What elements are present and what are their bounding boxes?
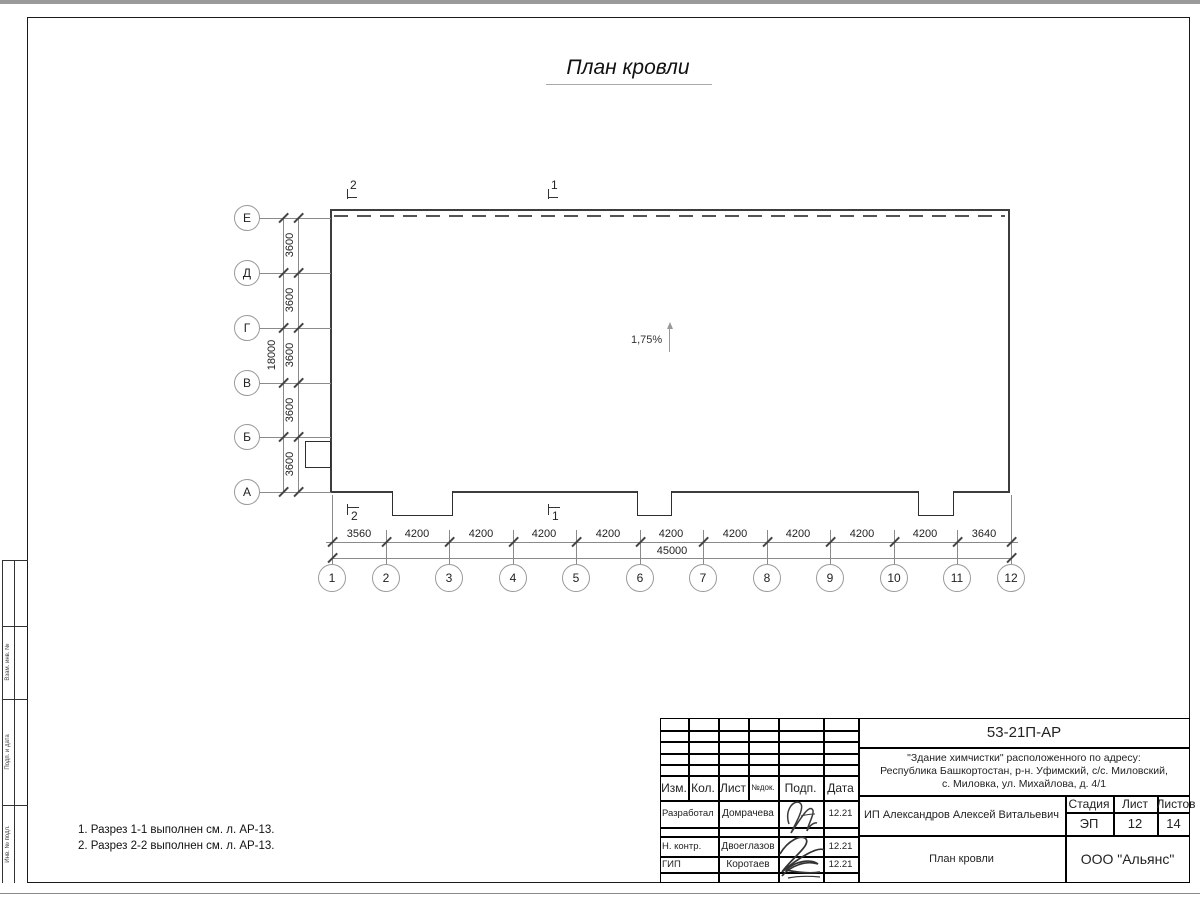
- tb-name: Коротаев: [718, 856, 778, 872]
- row-axis-bubble: Д: [234, 260, 260, 286]
- col-segment-dim: 4200: [405, 528, 429, 540]
- tb-role: ГИП: [662, 856, 718, 872]
- note-line: 1. Разрез 1-1 выполнен см. л. АР-13.: [78, 822, 275, 838]
- col-segment-dim: 4200: [913, 528, 937, 540]
- tb-date: 12.21: [823, 800, 858, 827]
- col-axis-bubble: 10: [880, 564, 908, 592]
- col-axis-bubble: 7: [689, 564, 717, 592]
- row-segment-dim: 3600: [284, 343, 296, 367]
- tb-role: Н. контр.: [662, 836, 718, 856]
- tb-name: Домрачева: [718, 800, 778, 827]
- tb-header-kol: Кол.: [688, 775, 718, 800]
- tb-header-list: Лист: [718, 775, 748, 800]
- tb-drawing-name: План кровли: [858, 835, 1065, 883]
- col-segment-dim: 4200: [596, 528, 620, 540]
- tb-line: [660, 730, 858, 732]
- col-segment-dim: 4200: [532, 528, 556, 540]
- col-axis-line: [894, 530, 895, 564]
- row-axis-bubble: Г: [234, 315, 260, 341]
- col-axis-line: [767, 530, 768, 564]
- row-segment-dim: 3600: [284, 452, 296, 476]
- tb-line: [660, 741, 858, 743]
- col-axis-bubble: 6: [626, 564, 654, 592]
- col-axis-line: [1011, 495, 1012, 564]
- tb-sheet-header: Лист: [1113, 795, 1157, 812]
- tb-line: [660, 753, 858, 755]
- row-axis-bubble: А: [234, 479, 260, 505]
- tb-line: [660, 764, 858, 766]
- col-segment-dim: 4200: [850, 528, 874, 540]
- row-segment-dim: 3600: [284, 288, 296, 312]
- col-axis-line: [703, 530, 704, 564]
- tb-company: ООО "Альянс": [1065, 835, 1190, 883]
- tb-address-line: с. Миловка, ул. Михайлова, д. 4/1: [942, 778, 1106, 791]
- col-axis-bubble: 3: [435, 564, 463, 592]
- col-segment-dim: 4200: [659, 528, 683, 540]
- tb-header-izm: Изм.: [660, 775, 688, 800]
- tb-doc-number: 53-21П-АР: [858, 718, 1190, 747]
- col-axis-line: [957, 530, 958, 564]
- signature-razrabotal: [781, 796, 825, 836]
- col-axis-bubble: 2: [372, 564, 400, 592]
- col-axis-bubble: 8: [753, 564, 781, 592]
- tb-sheets-header: Листов: [1157, 795, 1195, 812]
- col-axis-line: [830, 530, 831, 564]
- drawing-sheet: Взам. инв. № Подп. и дата Инв. № подл. П…: [0, 0, 1200, 900]
- col-axis-bubble: 1: [318, 564, 346, 592]
- tb-address: "Здание химчистки" расположенного по адр…: [858, 747, 1190, 795]
- row-axis-bubble: Б: [234, 424, 260, 450]
- row-axis-bubble: В: [234, 370, 260, 396]
- col-axis-bubble: 5: [562, 564, 590, 592]
- row-segment-dim: 3600: [284, 398, 296, 422]
- tb-stage-header: Стадия: [1065, 795, 1113, 812]
- tb-header-data: Дата: [823, 775, 858, 800]
- col-axis-line: [513, 530, 514, 564]
- col-axis-bubble: 4: [499, 564, 527, 592]
- tb-sheet-value: 12: [1113, 812, 1157, 835]
- note-line: 2. Разрез 2-2 выполнен см. л. АР-13.: [78, 838, 275, 854]
- tb-address-line: "Здание химчистки" расположенного по адр…: [907, 752, 1141, 765]
- col-segment-dim: 4200: [786, 528, 810, 540]
- col-axis-bubble: 11: [943, 564, 971, 592]
- tb-sheets-value: 14: [1157, 812, 1190, 835]
- col-axis-bubble: 12: [997, 564, 1025, 592]
- row-axis-bubble: Е: [234, 205, 260, 231]
- row-segment-dim: 3600: [284, 233, 296, 257]
- col-axis-line: [449, 530, 450, 564]
- tb-stage-value: ЭП: [1065, 812, 1113, 835]
- col-segment-dim: 3560: [347, 528, 371, 540]
- tb-client: ИП Александров Алексей Витальевич: [858, 795, 1065, 835]
- col-segment-dim: 4200: [469, 528, 493, 540]
- notes: 1. Разрез 1-1 выполнен см. л. АР-13. 2. …: [78, 822, 275, 854]
- col-axis-bubble: 9: [816, 564, 844, 592]
- tb-header-ndok: №док.: [748, 775, 778, 800]
- tb-line: [660, 827, 858, 829]
- col-axis-line: [576, 530, 577, 564]
- col-axis-line: [386, 530, 387, 564]
- tb-address-line: Республика Башкортостан, р-н. Уфимский, …: [880, 765, 1168, 778]
- signature-nkontr-gip: [776, 832, 830, 882]
- col-axis-line: [640, 530, 641, 564]
- col-segment-dim: 3640: [972, 528, 996, 540]
- tb-name: Двоеглазов: [718, 836, 778, 856]
- col-segment-dim: 4200: [723, 528, 747, 540]
- col-axis-line: [332, 495, 333, 564]
- tb-role: Разработал: [662, 800, 718, 827]
